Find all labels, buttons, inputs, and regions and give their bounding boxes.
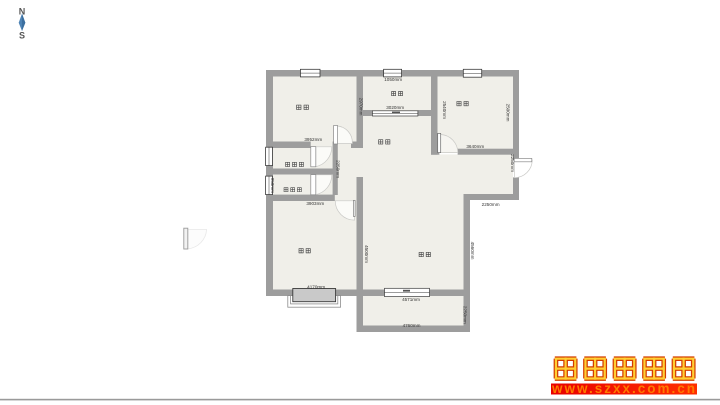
svg-text:S: S [19,31,25,41]
svg-text:3020mm: 3020mm [386,105,404,110]
svg-text:1050mm: 1050mm [384,77,402,82]
svg-text:3903mm: 3903mm [306,201,324,206]
svg-text:2250mm: 2250mm [482,202,500,207]
svg-text:www.szxx.com.cn: www.szxx.com.cn [551,381,695,396]
svg-text:4571mm: 4571mm [402,297,420,302]
svg-text:4170mm: 4170mm [307,284,325,289]
svg-text:2250mm: 2250mm [510,154,515,172]
svg-text:2250mm: 2250mm [462,306,467,324]
svg-text:4760mm: 4760mm [403,323,421,328]
svg-text:2970mm: 2970mm [359,98,364,116]
svg-text:2540mm: 2540mm [442,101,447,119]
svg-text:4560mm: 4560mm [470,242,475,260]
svg-text:3640mm: 3640mm [466,144,484,149]
svg-text:950mm: 950mm [270,178,275,193]
svg-text:2500mm: 2500mm [506,104,511,122]
svg-text:4500mm: 4500mm [364,245,369,263]
svg-text:3952mm: 3952mm [304,137,322,142]
svg-text:2250mm: 2250mm [335,160,340,178]
